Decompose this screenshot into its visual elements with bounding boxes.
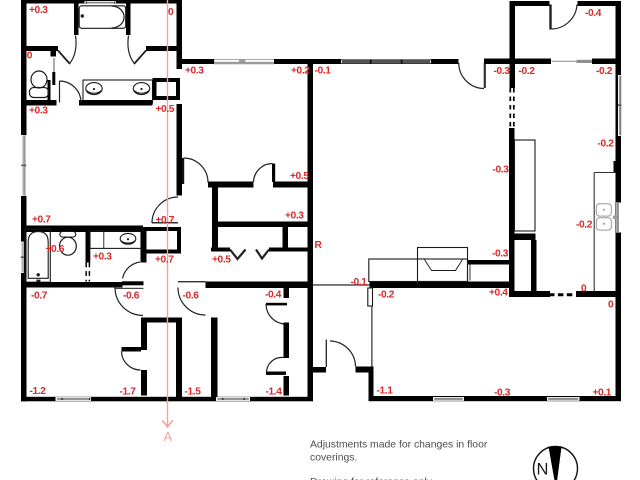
svg-text:-0.2: -0.2 bbox=[596, 66, 613, 77]
svg-text:-0.3: -0.3 bbox=[492, 248, 509, 259]
svg-text:-0.4: -0.4 bbox=[265, 289, 282, 300]
svg-text:-1.5: -1.5 bbox=[185, 386, 202, 397]
svg-text:R: R bbox=[315, 240, 323, 251]
svg-text:+0.5: +0.5 bbox=[156, 104, 175, 115]
svg-text:+0.3: +0.3 bbox=[93, 251, 112, 262]
svg-text:0: 0 bbox=[27, 50, 33, 61]
svg-text:0: 0 bbox=[581, 283, 587, 294]
svg-text:+0.3: +0.3 bbox=[29, 105, 48, 116]
svg-text:+0.3: +0.3 bbox=[185, 65, 204, 76]
svg-text:+0.1: +0.1 bbox=[593, 387, 612, 398]
svg-text:0: 0 bbox=[608, 299, 614, 310]
svg-text:-1.2: -1.2 bbox=[30, 386, 47, 397]
svg-text:-0.3: -0.3 bbox=[494, 66, 511, 77]
svg-text:-1.7: -1.7 bbox=[120, 386, 137, 397]
svg-text:-1.1: -1.1 bbox=[377, 385, 394, 396]
svg-text:coverings.: coverings. bbox=[310, 452, 357, 463]
svg-text:-0.6: -0.6 bbox=[183, 290, 200, 301]
svg-text:-0.2: -0.2 bbox=[378, 289, 395, 300]
svg-text:-0.3: -0.3 bbox=[493, 164, 510, 175]
svg-text:-0.1: -0.1 bbox=[315, 65, 332, 76]
svg-text:+0.4: +0.4 bbox=[489, 287, 508, 298]
svg-text:+0.5: +0.5 bbox=[290, 171, 309, 182]
svg-text:-0.2: -0.2 bbox=[598, 138, 615, 149]
svg-text:A: A bbox=[164, 429, 173, 444]
svg-text:-0.6: -0.6 bbox=[123, 290, 140, 301]
svg-text:-0.1: -0.1 bbox=[351, 277, 368, 288]
svg-text:+0.3: +0.3 bbox=[285, 210, 304, 221]
svg-text:+0.2: +0.2 bbox=[291, 65, 310, 76]
svg-text:-0.2: -0.2 bbox=[576, 219, 593, 230]
svg-text:-0.4: -0.4 bbox=[585, 8, 602, 19]
svg-text:+0.7: +0.7 bbox=[155, 254, 174, 265]
svg-text:-1.4: -1.4 bbox=[266, 387, 283, 398]
svg-text:+0.5: +0.5 bbox=[212, 254, 231, 265]
svg-text:-0.3: -0.3 bbox=[494, 387, 511, 398]
svg-text:+0.6: +0.6 bbox=[46, 244, 65, 255]
svg-text:+0.3: +0.3 bbox=[29, 5, 48, 16]
svg-text:N: N bbox=[537, 461, 549, 479]
svg-text:Adjustments made for changes i: Adjustments made for changes in floor bbox=[310, 440, 488, 451]
svg-text:+0.7: +0.7 bbox=[32, 214, 51, 225]
svg-text:0: 0 bbox=[168, 7, 174, 18]
svg-text:-0.2: -0.2 bbox=[519, 66, 536, 77]
svg-text:-0.7: -0.7 bbox=[31, 290, 48, 301]
svg-text:+0.7: +0.7 bbox=[156, 215, 175, 226]
